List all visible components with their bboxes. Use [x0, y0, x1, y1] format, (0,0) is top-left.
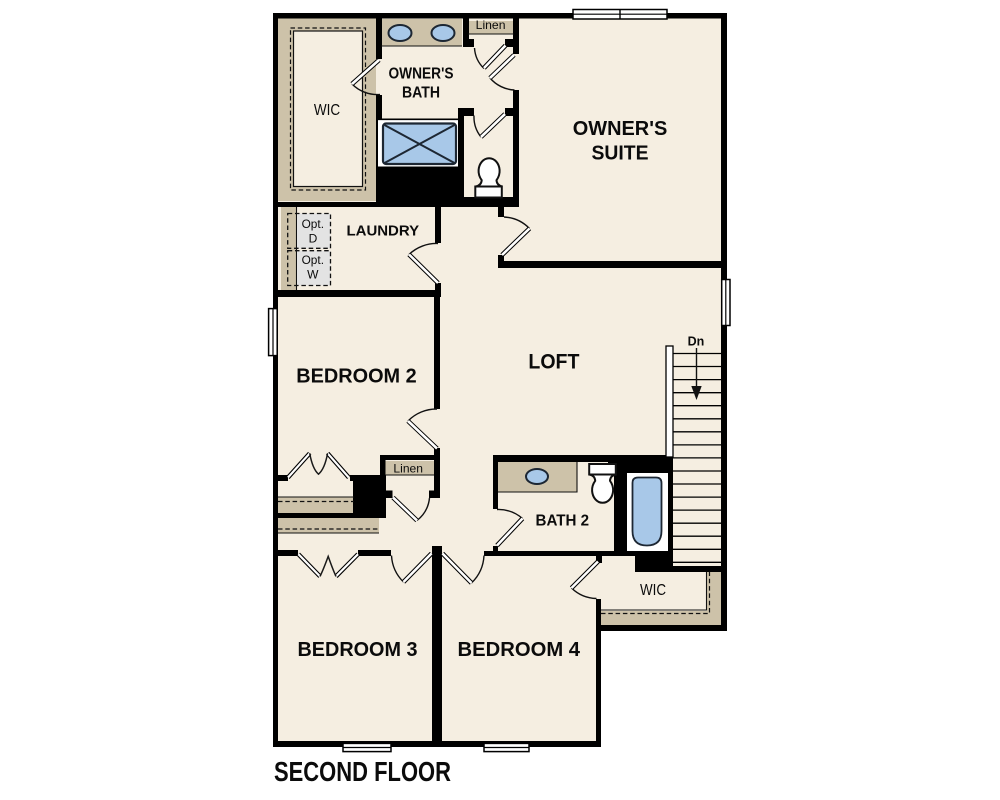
svg-text:SUITE: SUITE [592, 142, 649, 164]
svg-text:OWNER'S: OWNER'S [573, 118, 668, 140]
svg-text:BATH 2: BATH 2 [536, 513, 590, 530]
svg-text:W: W [307, 267, 319, 281]
svg-text:BEDROOM 4: BEDROOM 4 [458, 639, 581, 661]
svg-text:BATH: BATH [402, 84, 440, 101]
svg-text:BEDROOM 2: BEDROOM 2 [296, 365, 416, 387]
svg-text:Dn: Dn [688, 334, 705, 348]
svg-text:BEDROOM 3: BEDROOM 3 [298, 639, 418, 661]
svg-text:Linen: Linen [476, 18, 506, 32]
svg-text:WIC: WIC [314, 102, 340, 119]
svg-text:Opt.: Opt. [302, 253, 324, 267]
svg-text:OWNER'S: OWNER'S [389, 66, 454, 83]
svg-text:Opt.: Opt. [302, 217, 324, 231]
svg-text:LAUNDRY: LAUNDRY [347, 223, 420, 239]
svg-text:SECOND FLOOR: SECOND FLOOR [274, 756, 451, 787]
svg-text:LOFT: LOFT [528, 351, 579, 374]
svg-text:Linen: Linen [393, 462, 423, 476]
svg-text:D: D [309, 231, 318, 245]
svg-text:WIC: WIC [640, 582, 666, 599]
